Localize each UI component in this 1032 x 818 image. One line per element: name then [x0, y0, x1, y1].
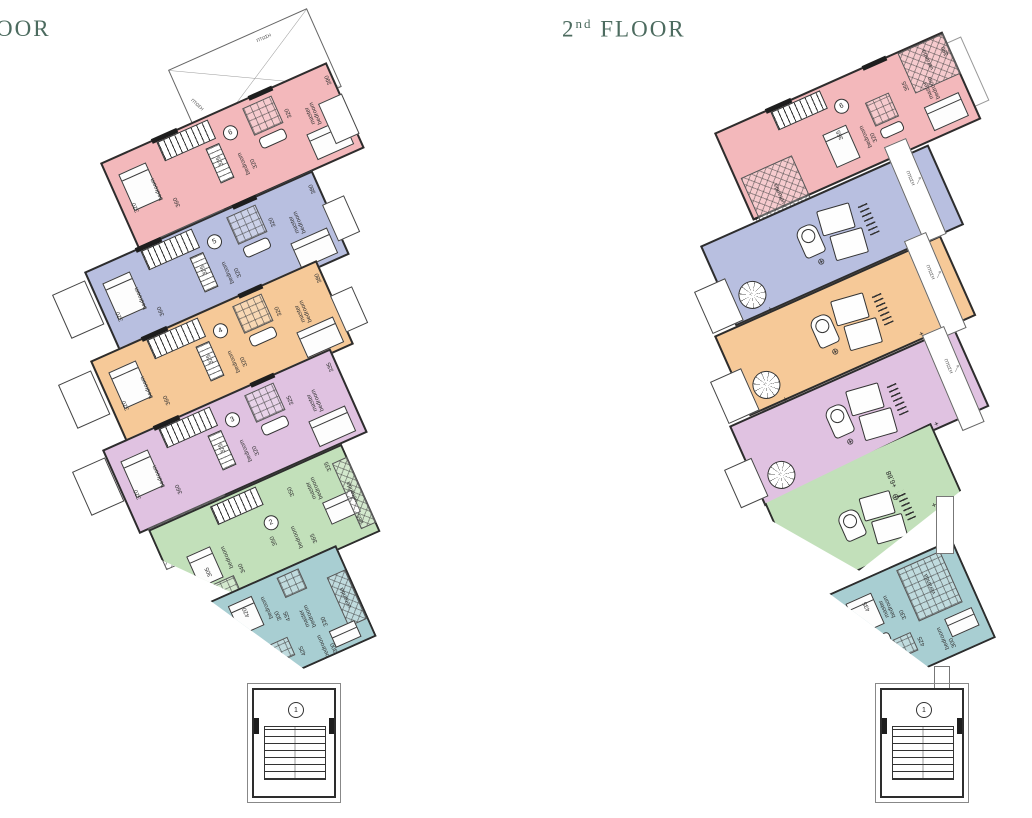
- wall-segment: [957, 718, 962, 734]
- veranda-label: veranda: [921, 48, 936, 70]
- unit-number: 6: [838, 102, 844, 110]
- stair-level-number: 1: [922, 707, 926, 714]
- bathtub-icon: [864, 631, 892, 652]
- stair-level-badge: 1: [916, 702, 932, 718]
- level-target-icon: ⊕: [844, 436, 857, 447]
- veranda-label: veranda: [773, 182, 788, 204]
- stair-tower: 1: [880, 688, 964, 798]
- floor-plan-2nd: 2nd FLOOR ΠΤΩΣΗ 6 veranda bedroom 365 32…: [0, 0, 1032, 818]
- plan-title-2nd-number: 2: [562, 17, 576, 42]
- plan-title-2nd-ordinal: nd: [576, 16, 593, 31]
- plan-title-2nd: 2nd FLOOR: [562, 16, 686, 43]
- unit-1-apartment-2f: master bedroom 435 330 veranda bedroom 4…: [806, 539, 996, 703]
- plan-title-2nd-word: FLOOR: [600, 17, 685, 42]
- survey-mark: +: [932, 419, 940, 429]
- unit-number-badge: 6: [832, 96, 852, 116]
- level-target-icon: ⊕: [829, 346, 842, 357]
- spiral-stair-icon: [763, 456, 800, 493]
- spiral-stair-icon: [734, 276, 771, 313]
- staircase-treads: [892, 726, 954, 780]
- veranda-area: veranda: [896, 551, 963, 622]
- dimension: 425: [917, 635, 927, 647]
- veranda-label: veranda: [923, 573, 938, 595]
- level-marker: +6.88: [885, 469, 899, 488]
- wall-segment: [862, 56, 888, 71]
- wall-segment: [882, 718, 887, 734]
- dimension: 330: [899, 608, 909, 620]
- staircase-icon: [770, 90, 827, 130]
- bed-icon: [944, 607, 980, 637]
- window-box: [936, 496, 954, 554]
- bathroom-tiles: [892, 632, 918, 658]
- level-target-icon: ⊕: [815, 256, 828, 267]
